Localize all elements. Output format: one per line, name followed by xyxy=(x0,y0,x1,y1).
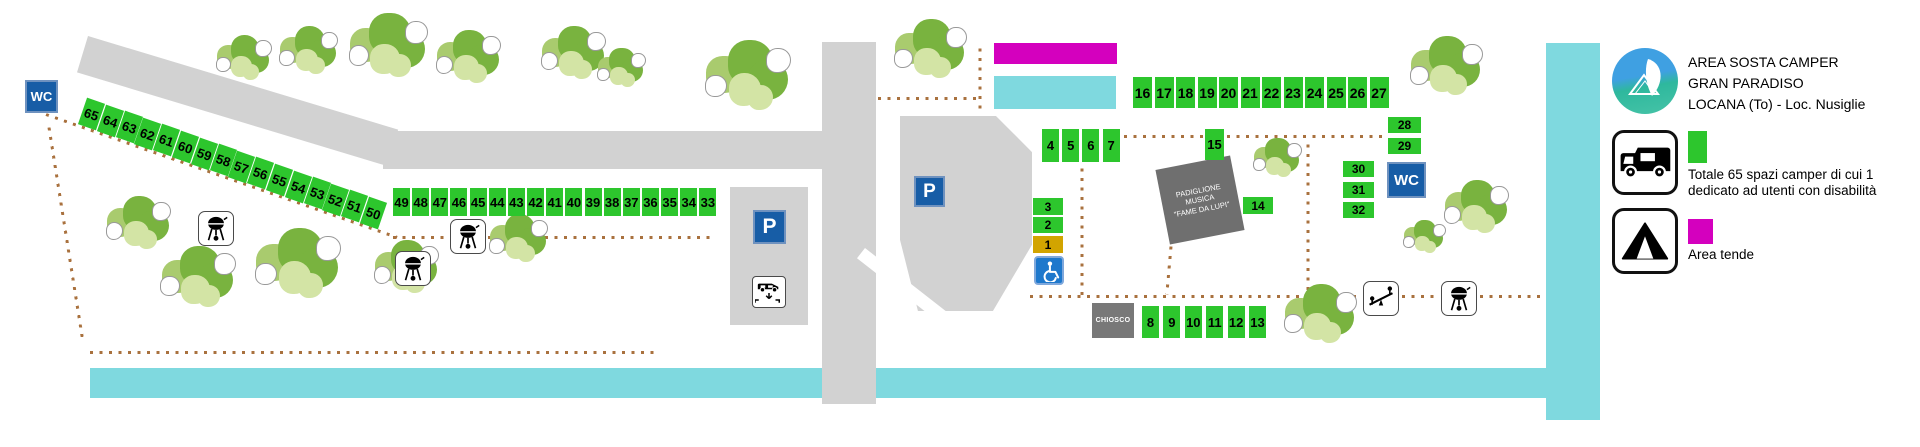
bbq-grill-icon xyxy=(1441,281,1477,316)
tree-icon xyxy=(214,253,236,275)
footpath-dotted xyxy=(1480,295,1544,298)
camper-spot-5: 5 xyxy=(1062,129,1079,162)
tree-icon xyxy=(138,230,157,249)
footpath-dotted xyxy=(979,49,982,112)
wc-sign-right: WC xyxy=(1387,162,1426,198)
legend-title-line: AREA SOSTA CAMPER xyxy=(1688,52,1865,73)
tree-icon xyxy=(705,75,727,97)
tree-icon xyxy=(1433,224,1446,237)
footpath-dotted xyxy=(1227,135,1387,138)
tree-icon xyxy=(198,285,220,307)
camper-spot-39: 39 xyxy=(585,188,602,216)
tree-icon xyxy=(894,49,913,68)
tree-icon xyxy=(243,64,259,80)
wheelchair-glyph xyxy=(1038,260,1060,282)
footpath-dotted xyxy=(90,351,655,354)
tree-icon xyxy=(930,57,951,78)
gran-paradiso-logo xyxy=(1612,48,1678,114)
tree-icon xyxy=(1320,322,1341,343)
tree-icon xyxy=(1490,186,1509,205)
parking-p-sign-1: P xyxy=(753,210,786,244)
camper-spot-42: 42 xyxy=(527,188,544,216)
camper-spot-19: 19 xyxy=(1198,77,1217,108)
camper-spot-13: 13 xyxy=(1249,306,1266,338)
camper-spot-17: 17 xyxy=(1155,77,1174,108)
camper-spot-4: 4 xyxy=(1042,129,1059,162)
camper-spot-45: 45 xyxy=(470,188,487,216)
camper-spot-7: 7 xyxy=(1103,129,1120,162)
camper-spot-15: 15 xyxy=(1205,129,1224,160)
tree-icon xyxy=(216,57,231,72)
camper-note-line: dedicato ad utenti con disabilità xyxy=(1688,183,1876,199)
camper-spot-16: 16 xyxy=(1133,77,1152,108)
tree-icon xyxy=(1253,158,1266,171)
bbq-grill-glyph xyxy=(399,254,427,284)
logo-glyph xyxy=(1612,48,1678,114)
camper-spot-11: 11 xyxy=(1206,306,1223,338)
camper-spot-31: 31 xyxy=(1343,182,1374,198)
camper-spot-47: 47 xyxy=(431,188,448,216)
tree-icon xyxy=(152,202,171,221)
camper-spot-2: 2 xyxy=(1033,217,1063,233)
camper-spot-33: 33 xyxy=(699,188,716,216)
camper-spot-10: 10 xyxy=(1185,306,1202,338)
camper-spot-12: 12 xyxy=(1228,306,1245,338)
camper-spot-38: 38 xyxy=(604,188,621,216)
footpath-dotted xyxy=(878,97,981,100)
camper-spot-40: 40 xyxy=(565,188,582,216)
tree-icon xyxy=(587,32,606,51)
tree-icon xyxy=(308,57,325,74)
camper-spot-29: 29 xyxy=(1388,138,1421,154)
seesaw-glyph xyxy=(1366,285,1396,312)
legend-title-line: GRAN PARADISO xyxy=(1688,73,1865,94)
music-pavilion: PADIGLIONE MUSICA "FAME DA LUPI" xyxy=(1155,155,1244,244)
camper-spot-22: 22 xyxy=(1262,77,1281,108)
tree-icon xyxy=(106,222,123,239)
camper-spot-36: 36 xyxy=(642,188,659,216)
area-tende-swatch xyxy=(1688,219,1713,244)
camper-spot-6: 6 xyxy=(1082,129,1099,162)
tree-icon xyxy=(531,220,548,237)
tree-icon xyxy=(388,54,411,77)
wc-sign-left: WC xyxy=(25,80,58,113)
tree-icon xyxy=(946,27,967,48)
road-horizontal xyxy=(383,131,823,169)
camper-spot-21: 21 xyxy=(1241,77,1260,108)
bbq-grill-glyph xyxy=(1445,284,1473,314)
camper-spot-1: 1 xyxy=(1033,236,1063,253)
kiosk: CHIOSCO xyxy=(1092,303,1134,338)
tree-icon xyxy=(621,73,635,87)
footpath-dotted xyxy=(1307,145,1310,297)
tent-icon xyxy=(1612,208,1678,274)
tree-icon xyxy=(1277,163,1291,177)
tree-icon xyxy=(518,245,535,262)
tree-icon xyxy=(1403,236,1415,248)
footpath-dotted xyxy=(48,127,84,339)
camper-spot-46: 46 xyxy=(450,188,467,216)
tree-icon xyxy=(468,64,487,83)
kiosk-label: CHIOSCO xyxy=(1096,317,1131,324)
tree-icon xyxy=(748,85,773,110)
camper-service-glyph xyxy=(755,279,783,306)
camper-spot-30: 30 xyxy=(1343,161,1374,177)
legend-title-line: LOCANA (To) - Loc. Nusiglie xyxy=(1688,94,1865,115)
parking-lot-2 xyxy=(900,116,1032,311)
legend-title: AREA SOSTA CAMPER GRAN PARADISO LOCANA (… xyxy=(1688,52,1865,115)
wc-label: WC xyxy=(31,89,53,104)
tree-icon xyxy=(1284,314,1303,333)
canal-horizontal xyxy=(90,368,1546,398)
camper-spot-26: 26 xyxy=(1348,77,1367,108)
footpath-dotted xyxy=(1124,135,1203,138)
tree-icon xyxy=(1462,44,1483,65)
footpath-dotted xyxy=(393,236,448,239)
tree-icon xyxy=(541,52,558,69)
wc-label: WC xyxy=(1394,172,1419,189)
tree-icon xyxy=(374,266,391,283)
camper-spot-43: 43 xyxy=(508,188,525,216)
tree-icon xyxy=(1410,66,1429,85)
tree-icon xyxy=(321,32,338,49)
parking-p-sign-2: P xyxy=(914,176,945,207)
parking-label: P xyxy=(923,181,936,203)
tree-icon xyxy=(1444,206,1461,223)
camper-spot-23: 23 xyxy=(1284,77,1303,108)
camper-spot-9: 9 xyxy=(1163,306,1180,338)
camper-spot-24: 24 xyxy=(1305,77,1324,108)
parking-label: P xyxy=(762,215,776,239)
area-tende-label: Area tende xyxy=(1688,247,1754,262)
camper-note-line: Totale 65 spazi camper di cui 1 xyxy=(1688,167,1876,183)
cyan-zone xyxy=(994,76,1116,109)
bbq-grill-icon xyxy=(198,211,234,246)
camper-spot-35: 35 xyxy=(661,188,678,216)
camper-spot-25: 25 xyxy=(1327,77,1346,108)
tree-icon xyxy=(1336,292,1357,313)
tree-icon xyxy=(482,36,501,55)
tent-glyph xyxy=(1620,220,1670,262)
footpath-dotted xyxy=(1402,295,1440,298)
camper-spot-32: 32 xyxy=(1343,202,1374,218)
tree-icon xyxy=(1476,214,1495,233)
tree-icon xyxy=(298,273,323,298)
camper-spot-27: 27 xyxy=(1370,77,1389,108)
camper-spot-18: 18 xyxy=(1176,77,1195,108)
tree-icon xyxy=(1424,241,1436,253)
canal-vertical xyxy=(1546,43,1600,420)
footpath-dotted xyxy=(1081,169,1084,299)
tree-icon xyxy=(255,40,271,56)
area-tende-zone xyxy=(994,43,1117,64)
tree-icon xyxy=(597,68,610,81)
tree-icon xyxy=(279,50,295,66)
tree-icon xyxy=(405,21,428,44)
tree-icon xyxy=(1287,143,1302,158)
tree-icon xyxy=(160,276,180,296)
road-vertical xyxy=(822,42,876,404)
tree-icon xyxy=(1446,74,1467,95)
wheelchair-icon xyxy=(1034,256,1064,285)
camper-spot-37: 37 xyxy=(623,188,640,216)
tree-icon xyxy=(489,238,505,254)
tree-icon xyxy=(316,236,341,261)
camper-spot-49: 49 xyxy=(393,188,410,216)
camper-spot-14: 14 xyxy=(1243,197,1273,214)
bbq-grill-glyph xyxy=(202,214,230,244)
camper-spot-20: 20 xyxy=(1219,77,1238,108)
tree-icon xyxy=(573,60,592,79)
camper-spot-41: 41 xyxy=(546,188,563,216)
tree-icon xyxy=(349,45,369,65)
tree-icon xyxy=(255,263,277,285)
camper-spot-28: 28 xyxy=(1388,117,1421,133)
camper-service-icon xyxy=(752,276,786,308)
legend: AREA SOSTA CAMPER GRAN PARADISO LOCANA (… xyxy=(1600,0,1920,447)
bbq-grill-icon xyxy=(395,251,431,286)
tree-icon xyxy=(766,48,791,73)
camper-spot-3: 3 xyxy=(1033,198,1063,215)
bbq-grill-icon xyxy=(450,219,486,254)
tree-icon xyxy=(436,56,453,73)
camper-area-map: PADIGLIONE MUSICA "FAME DA LUPI" CHIOSCO… xyxy=(0,0,1920,447)
seesaw-icon xyxy=(1363,281,1399,316)
camper-spot-34: 34 xyxy=(680,188,697,216)
camper-spot-8: 8 xyxy=(1142,306,1159,338)
camper-note: Totale 65 spazi camper di cui 1 dedicato… xyxy=(1688,167,1876,198)
footpath-dotted xyxy=(1165,246,1172,294)
camper-spot-44: 44 xyxy=(489,188,506,216)
bbq-grill-glyph xyxy=(454,222,482,252)
camper-icon xyxy=(1612,130,1678,195)
camper-spot-48: 48 xyxy=(412,188,429,216)
camper-glyph xyxy=(1617,143,1673,183)
tree-icon xyxy=(631,53,646,68)
camper-spot-swatch xyxy=(1688,131,1707,163)
